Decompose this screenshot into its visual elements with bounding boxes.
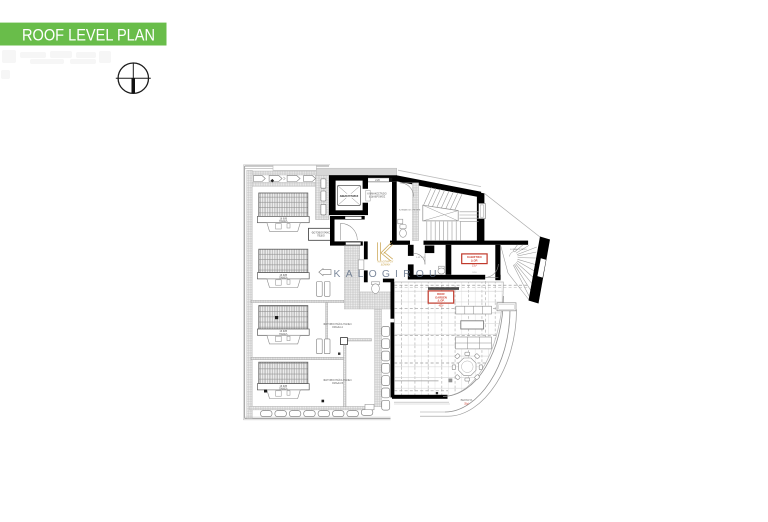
svg-text:Δ.ΟΡ.: Δ.ΟΡ. (471, 259, 478, 263)
svg-text:17μ²: 17μ² (472, 265, 477, 268)
svg-text:ΚΛΙΜΑΚΟΣΤ. ΡΕΤΙΡΕ: ΚΛΙΜΑΚΟΣΤ. ΡΕΤΙΡΕ (399, 209, 421, 212)
svg-text:1.4Ρ 2.1Υ: 1.4Ρ 2.1Υ (416, 257, 426, 259)
svg-text:2.20: 2.20 (375, 180, 380, 182)
svg-text:45μ²: 45μ² (439, 304, 444, 307)
svg-text:ΚΑΘΙΣΤΙΚΟ: ΚΑΘΙΣΤΙΚΟ (467, 255, 482, 259)
svg-text:ΒΕΡΑΝΤΑ: ΒΕΡΑΝΤΑ (461, 398, 473, 402)
svg-text:KALOGIROU: KALOGIROU (334, 269, 437, 280)
svg-text:ΑΝΕΛΚΥΣΤΗΡΑΣ: ΑΝΕΛΚΥΣΤΗΡΑΣ (340, 195, 359, 198)
svg-text:ΟΜΑΔΑ Α: ΟΜΑΔΑ Α (332, 326, 343, 329)
svg-text:ΚΛΙΜΑΚΟΣΤΑΣΙΟ: ΚΛΙΜΑΚΟΣΤΑΣΙΟ (510, 248, 527, 251)
svg-text:ΔΟΜΙΚΗ: ΔΟΜΙΚΗ (381, 264, 391, 267)
svg-text:35μ²: 35μ² (464, 403, 469, 406)
svg-text:ΠΕΔΙΟ: ΠΕΔΙΟ (317, 235, 325, 238)
svg-text:Δ.ΟΡ.: Δ.ΟΡ. (438, 299, 445, 303)
svg-text:ROOF LEVEL PLAN: ROOF LEVEL PLAN (22, 27, 155, 45)
svg-text:ΟΜΑΔΑ Β: ΟΜΑΔΑ Β (332, 382, 344, 385)
svg-text:& ΔΙΑΔΡΟΜΟΣ: & ΔΙΑΔΡΟΜΟΣ (369, 196, 386, 199)
svg-text:ROOF: ROOF (437, 292, 445, 296)
svg-text:GARDEN: GARDEN (435, 295, 447, 299)
